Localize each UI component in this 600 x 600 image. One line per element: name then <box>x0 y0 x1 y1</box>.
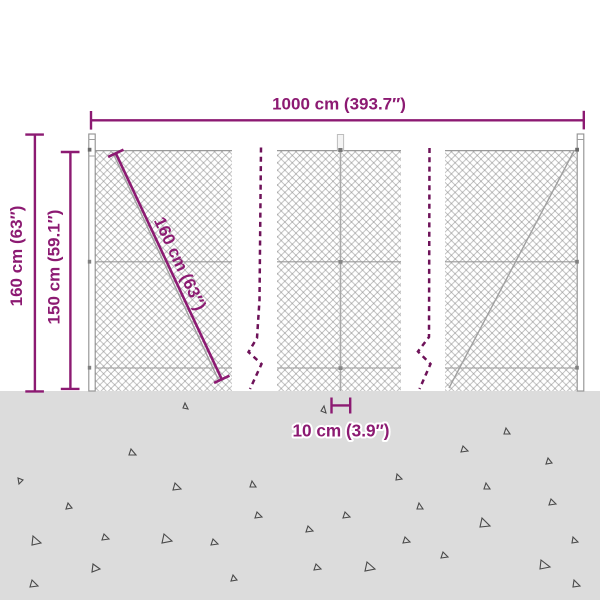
svg-text:160 cm (63″): 160 cm (63″) <box>7 206 26 307</box>
svg-text:10 cm (3.9″): 10 cm (3.9″) <box>292 421 389 441</box>
svg-text:1000 cm (393.7″): 1000 cm (393.7″) <box>272 95 406 114</box>
svg-text:150 cm (59.1″): 150 cm (59.1″) <box>45 210 64 325</box>
